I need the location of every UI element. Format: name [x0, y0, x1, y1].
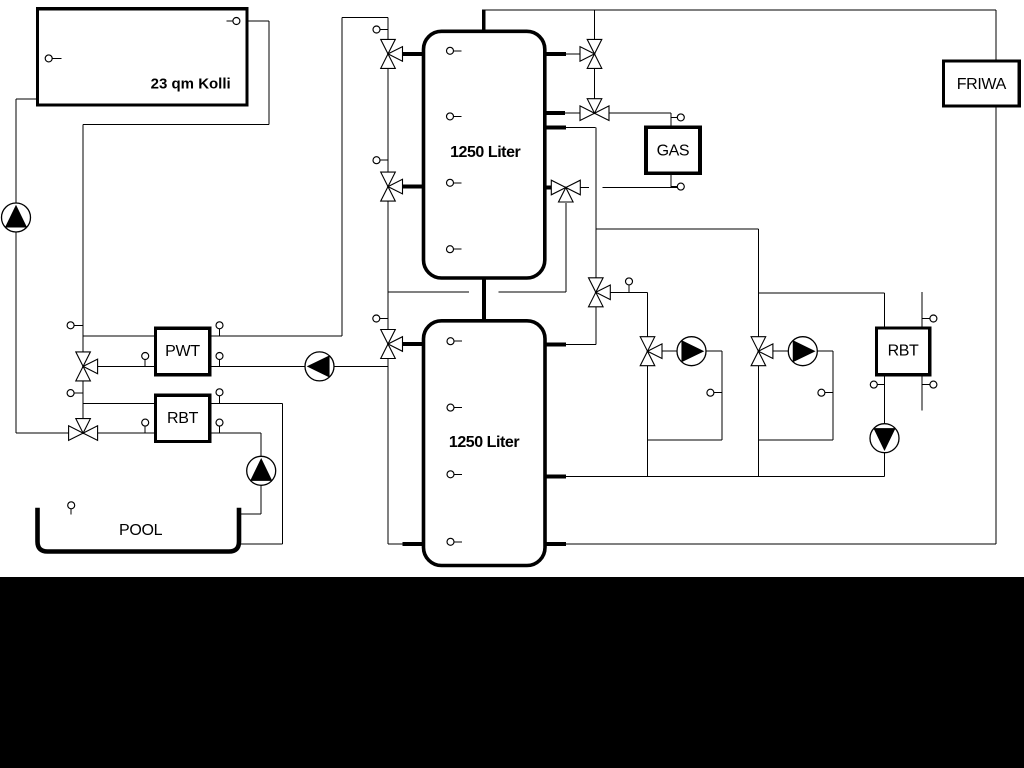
svg-text:1250 Liter: 1250 Liter — [450, 144, 520, 161]
svg-text:23 qm Kolli: 23 qm Kolli — [151, 75, 231, 92]
svg-text:RBT: RBT — [167, 410, 199, 427]
svg-text:RBT: RBT — [888, 343, 919, 360]
svg-text:PWT: PWT — [165, 343, 200, 360]
svg-text:GAS: GAS — [657, 143, 690, 160]
svg-text:FRIWA: FRIWA — [957, 76, 1007, 93]
svg-text:1250 Liter: 1250 Liter — [449, 434, 519, 451]
svg-text:POOL: POOL — [119, 522, 163, 539]
